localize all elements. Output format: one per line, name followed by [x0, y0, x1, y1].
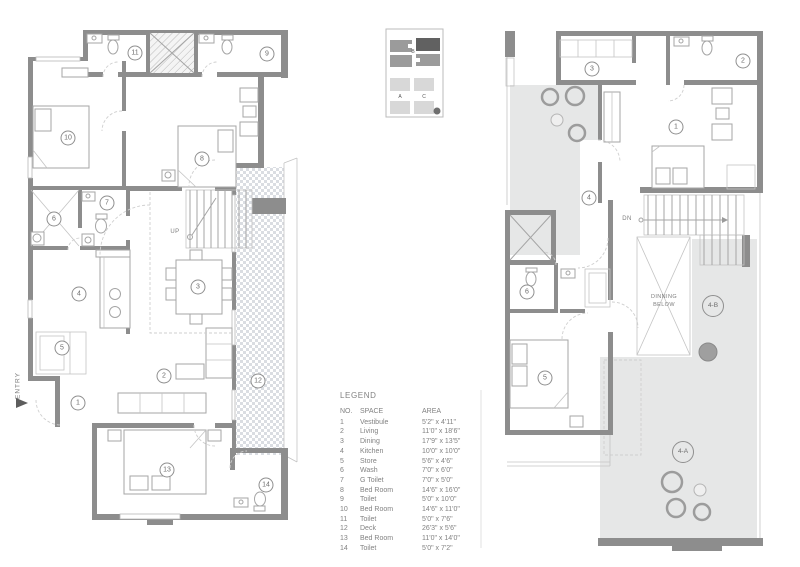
key-plan — [386, 29, 443, 117]
legend-row: 14Toilet5'0" x 7'2" — [340, 544, 492, 554]
legend-row: 13Bed Room11'0" x 14'0" — [340, 534, 492, 544]
entry-label: ENTRY — [15, 365, 22, 407]
legend-col-no: NO. — [340, 407, 360, 417]
floorplan-sheet: 1 2 3 4 5 6 7 8 9 10 11 12 13 14 1 2 3 4… — [0, 0, 800, 567]
room-label-2: 2 — [157, 369, 172, 384]
room-label-r6: 6 — [520, 285, 535, 300]
room-label-9: 9 — [260, 47, 275, 62]
unit-label-4a: 4-A — [672, 441, 694, 463]
room-label-3: 3 — [191, 280, 206, 295]
room-label-r2: 2 — [736, 54, 751, 69]
room-label-r3: 3 — [585, 62, 600, 77]
left-plan-furniture — [31, 34, 266, 511]
stair-up-label: UP — [170, 229, 179, 235]
room-label-12: 12 — [251, 374, 266, 389]
legend-title: LEGEND — [340, 391, 492, 400]
room-label-r5: 5 — [538, 371, 553, 386]
legend-row: 5Store5'6" x 4'6" — [340, 457, 492, 467]
room-label-10: 10 — [61, 131, 76, 146]
room-label-8: 8 — [195, 152, 210, 167]
room-label-1: 1 — [71, 396, 86, 411]
legend-row: 4Kitchen10'0" x 10'0" — [340, 447, 492, 457]
legend-row: 9Toilet5'0" x 10'0" — [340, 495, 492, 505]
room-label-6: 6 — [47, 212, 62, 227]
legend-header-row: NO. SPACE AREA — [340, 407, 492, 417]
legend-row: 11Toilet5'0" x 7'6" — [340, 515, 492, 525]
legend-row: 8Bed Room14'6" x 16'0" — [340, 486, 492, 496]
left-plan — [16, 30, 297, 525]
void-label-line1: DINNING — [651, 294, 677, 300]
room-label-14: 14 — [259, 478, 274, 493]
unit-label-4b: 4-B — [702, 295, 724, 317]
legend-col-area: AREA — [422, 407, 492, 417]
legend-row: 1Vestibule5'2" x 4'11" — [340, 418, 492, 428]
room-label-r1: 1 — [669, 120, 684, 135]
keyplan-block-c-label: C — [422, 94, 426, 100]
right-plan — [505, 31, 763, 551]
legend-row: 12Deck26'3" x 5'6" — [340, 524, 492, 534]
room-label-13: 13 — [160, 463, 175, 478]
stair-dn-label: DN — [622, 216, 631, 222]
keyplan-block-b-label: B — [411, 49, 414, 55]
room-label-r4: 4 — [582, 191, 597, 206]
legend-col-space: SPACE — [360, 407, 422, 417]
room-label-11: 11 — [128, 46, 143, 61]
keyplan-block-a-label: A — [398, 94, 401, 100]
legend-row: 6Wash7'0" x 6'0" — [340, 466, 492, 476]
legend-row: 10Bed Room14'6" x 11'0" — [340, 505, 492, 515]
legend-row: 2Living11'0" x 18'6" — [340, 427, 492, 437]
legend-row: 3Dining17'9" x 13'5" — [340, 437, 492, 447]
legend-row: 7G Toilet7'0" x 5'0" — [340, 476, 492, 486]
north-dot-icon — [434, 108, 441, 115]
room-label-7: 7 — [100, 196, 115, 211]
void-label-line2: BELOW — [653, 302, 675, 308]
room-label-4: 4 — [72, 287, 87, 302]
legend: LEGEND NO. SPACE AREA 1Vestibule5'2" x 4… — [340, 391, 492, 554]
room-label-5: 5 — [55, 341, 70, 356]
